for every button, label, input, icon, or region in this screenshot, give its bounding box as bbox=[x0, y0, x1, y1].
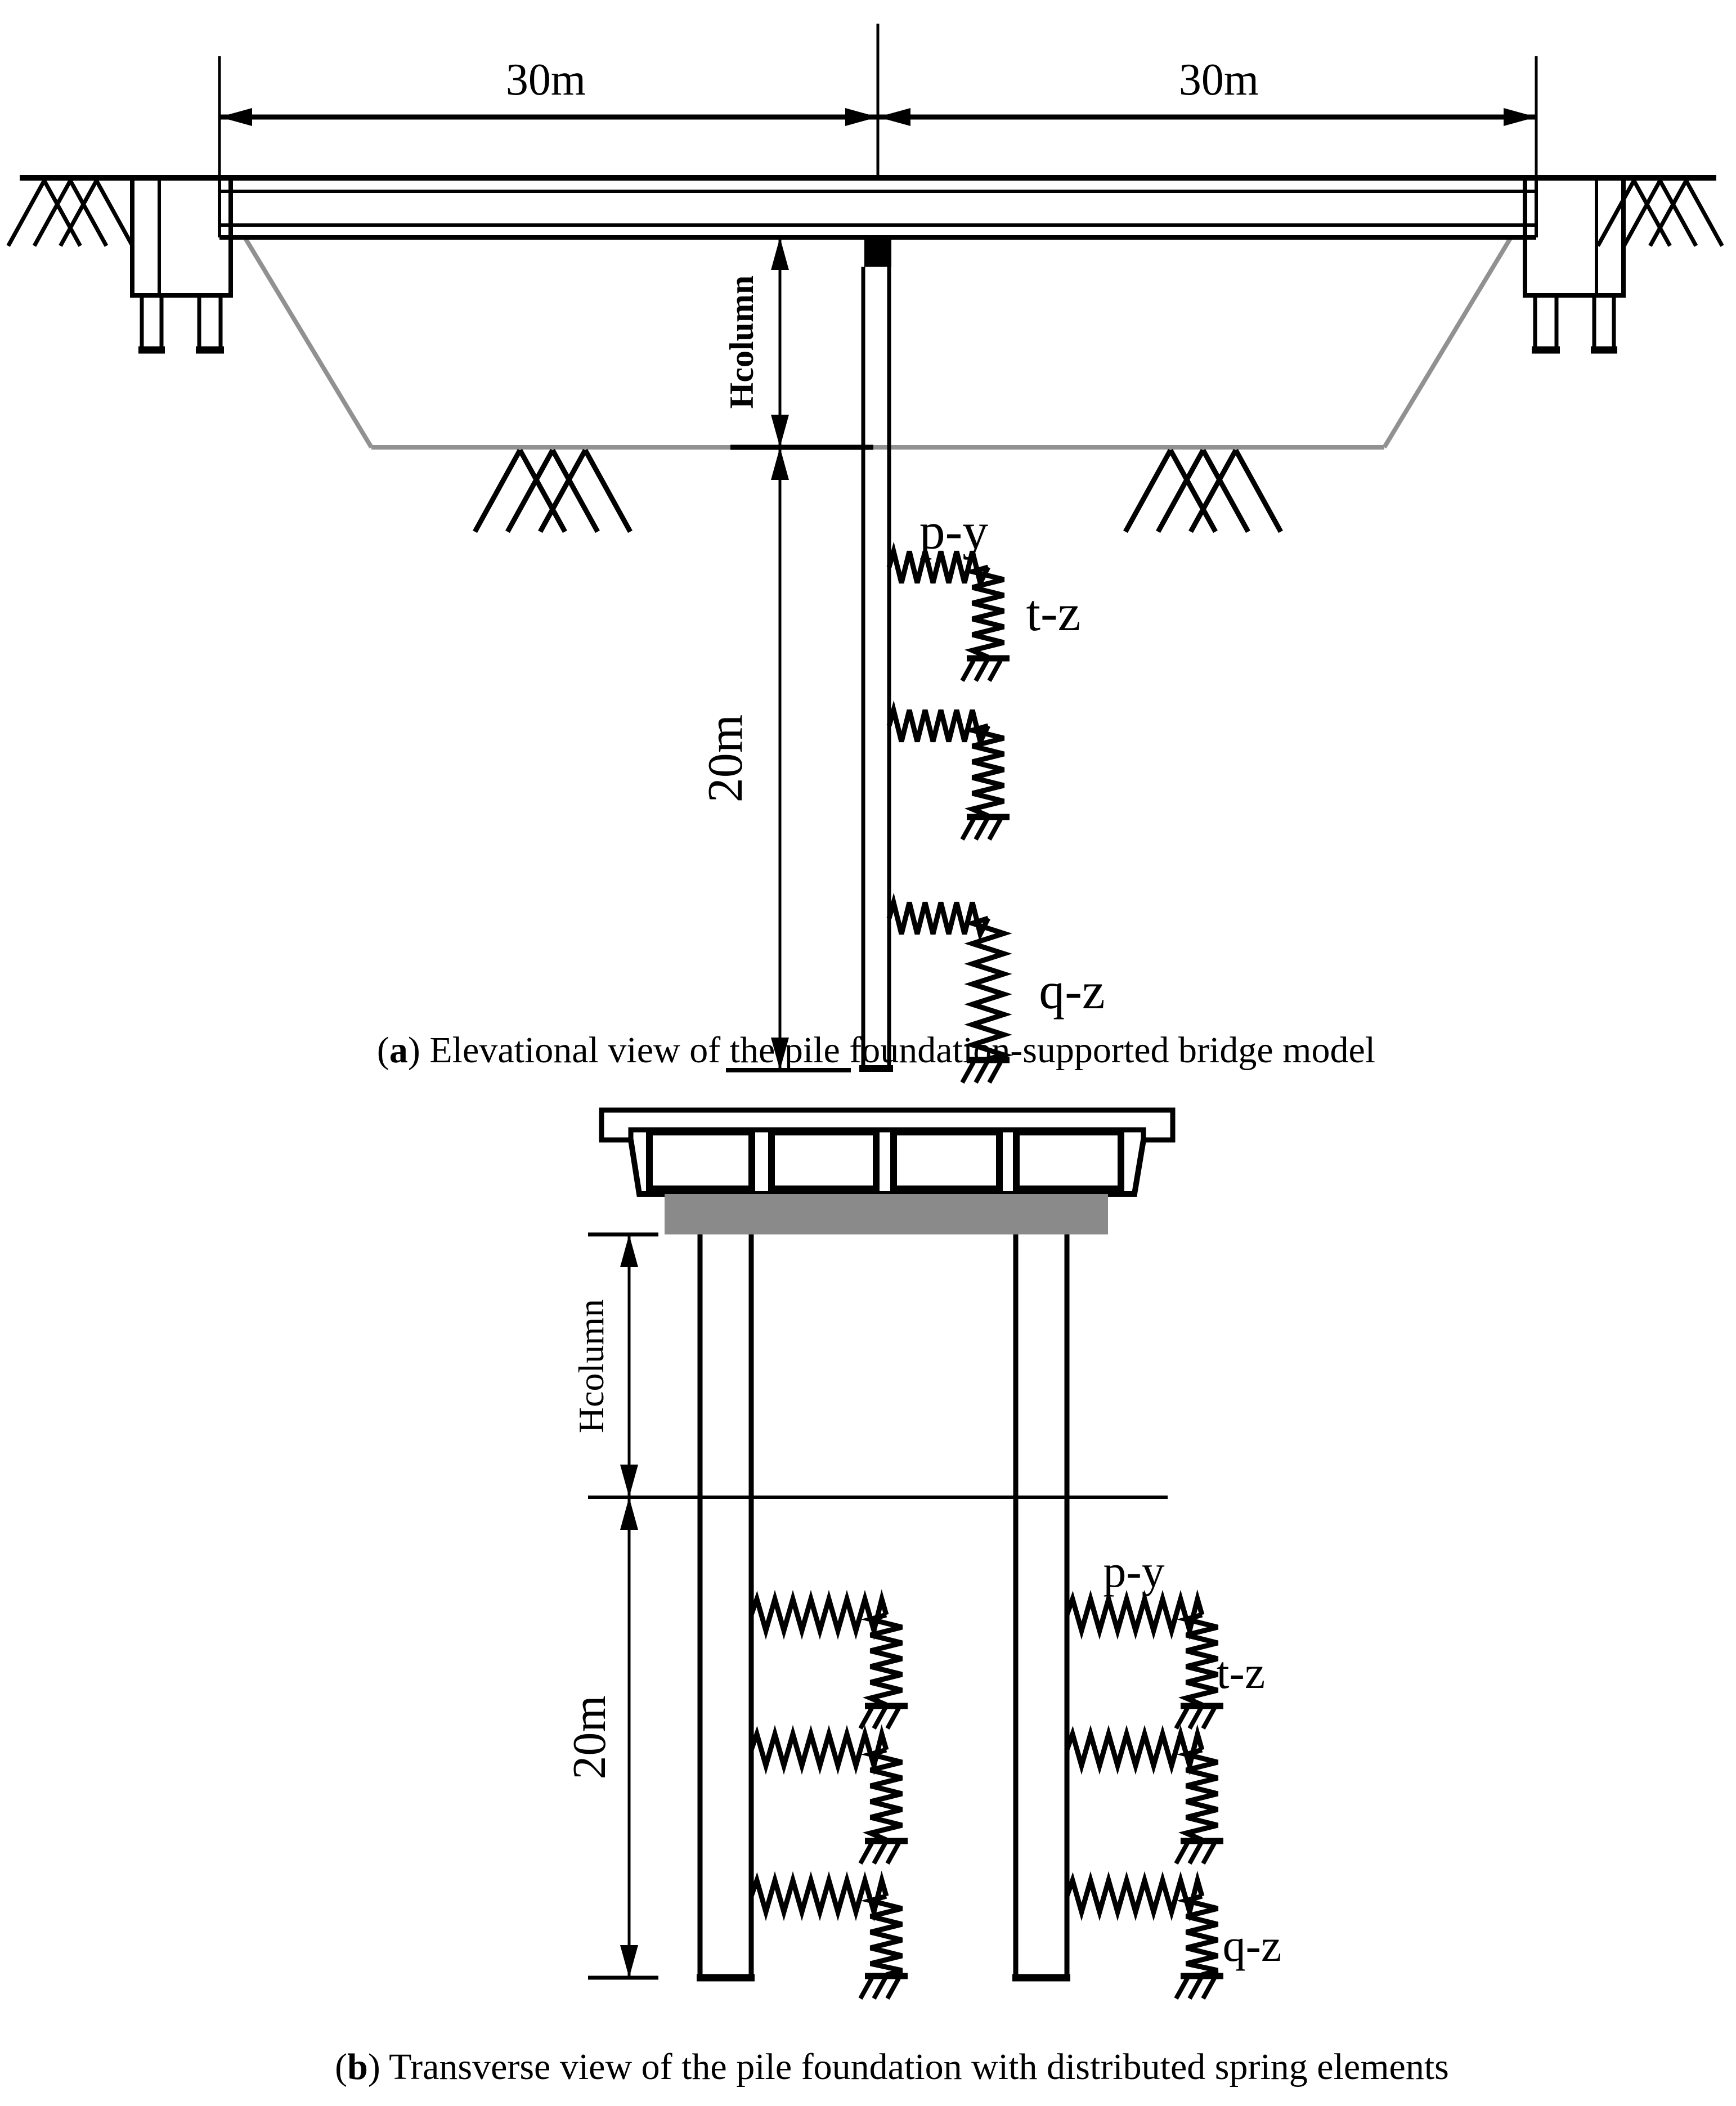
column-height-label: Hcolumn bbox=[571, 1299, 611, 1433]
q-z-spring-label: q-z bbox=[1039, 962, 1105, 1020]
column-height-label: Hcolumn bbox=[723, 276, 760, 409]
caption-b-open: ( bbox=[335, 2046, 347, 2087]
bearing-block bbox=[864, 237, 891, 267]
girder bbox=[649, 1132, 752, 1189]
caption-a: (a) Elevational view of the pile foundat… bbox=[377, 1030, 1375, 1071]
girder bbox=[771, 1132, 876, 1189]
caption-a-text: ) Elevational view of the pile foundatio… bbox=[408, 1030, 1375, 1071]
caption-b: (b) Transverse view of the pile foundati… bbox=[335, 2046, 1449, 2087]
caption-b-text: ) Transverse view of the pile foundation… bbox=[368, 2046, 1449, 2087]
caption-b-letter: b bbox=[347, 2046, 368, 2087]
caption-a-letter: a bbox=[389, 1030, 408, 1071]
pile-length-label: 20m bbox=[563, 1695, 616, 1779]
span-right-label: 30m bbox=[1179, 55, 1259, 105]
p-y-spring-label: p-y bbox=[919, 502, 989, 560]
figure-page: 30m 30m bbox=[0, 0, 1736, 2106]
girder bbox=[1016, 1132, 1121, 1189]
girder bbox=[894, 1132, 999, 1189]
pile-length-label: 20m bbox=[698, 715, 753, 802]
p-y-spring-label: p-y bbox=[1103, 1546, 1164, 1597]
caption-a-open: ( bbox=[377, 1030, 389, 1071]
t-z-spring-label: t-z bbox=[1026, 584, 1080, 641]
q-z-spring-label: q-z bbox=[1223, 1920, 1282, 1971]
pile-cap bbox=[665, 1194, 1108, 1234]
span-left-label: 30m bbox=[506, 55, 586, 105]
t-z-spring-label: t-z bbox=[1217, 1647, 1265, 1698]
